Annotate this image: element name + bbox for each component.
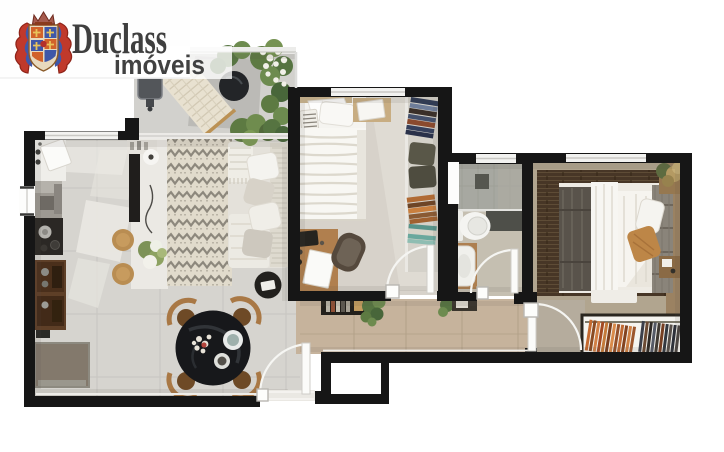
svg-text:imóveis: imóveis	[114, 50, 205, 80]
